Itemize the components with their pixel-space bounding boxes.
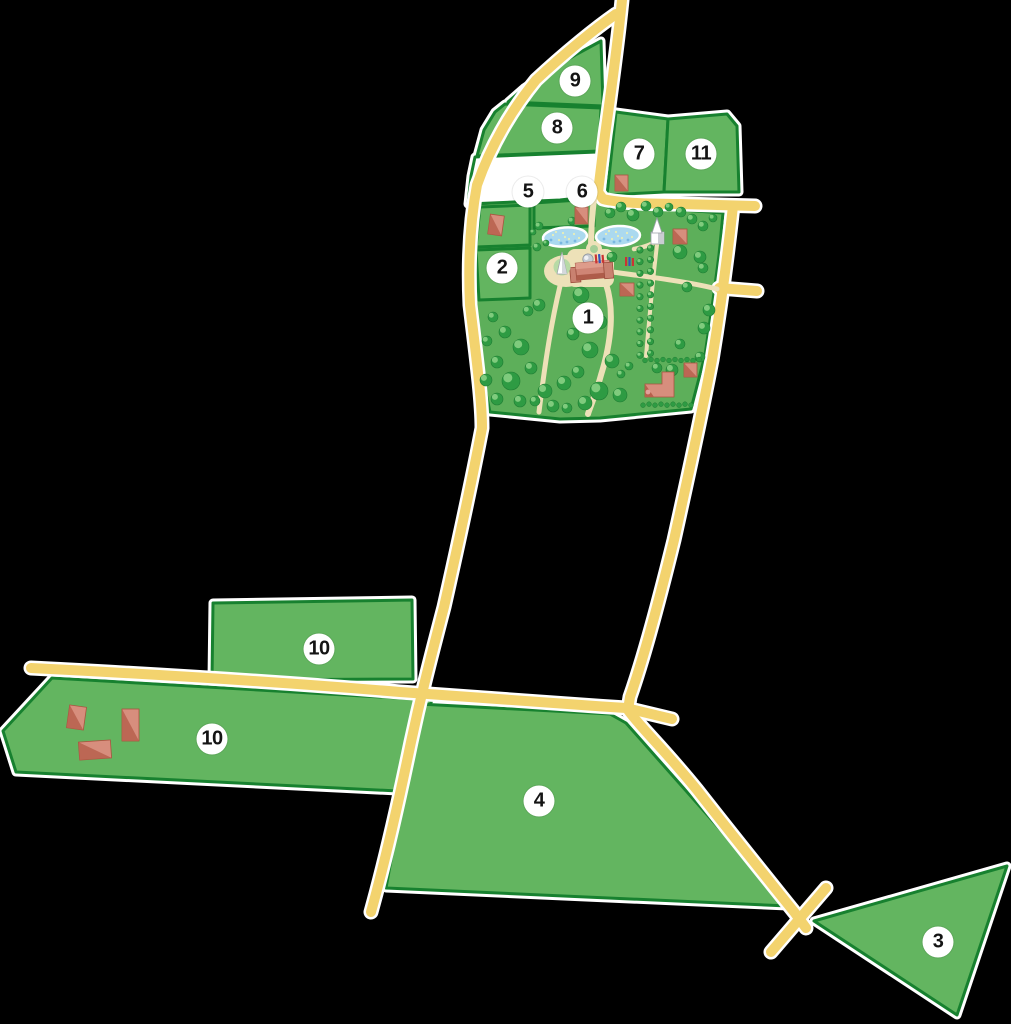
plot-label-2: 2 bbox=[487, 253, 518, 284]
plot-label-10-south: 10 bbox=[197, 724, 228, 755]
plot-label-10-north: 10 bbox=[304, 634, 335, 665]
plot-label-7: 7 bbox=[624, 139, 655, 170]
plot-label-3: 3 bbox=[923, 927, 954, 958]
plot-label-8: 8 bbox=[542, 113, 573, 144]
estate-map: 123456789101011 bbox=[0, 0, 1011, 1024]
plot-labels: 123456789101011 bbox=[0, 0, 1011, 1024]
plot-label-1: 1 bbox=[573, 303, 604, 334]
plot-label-4: 4 bbox=[524, 786, 555, 817]
plot-label-9: 9 bbox=[560, 66, 591, 97]
plot-label-5: 5 bbox=[513, 177, 544, 208]
plot-label-6: 6 bbox=[567, 177, 598, 208]
plot-label-11: 11 bbox=[686, 139, 717, 170]
